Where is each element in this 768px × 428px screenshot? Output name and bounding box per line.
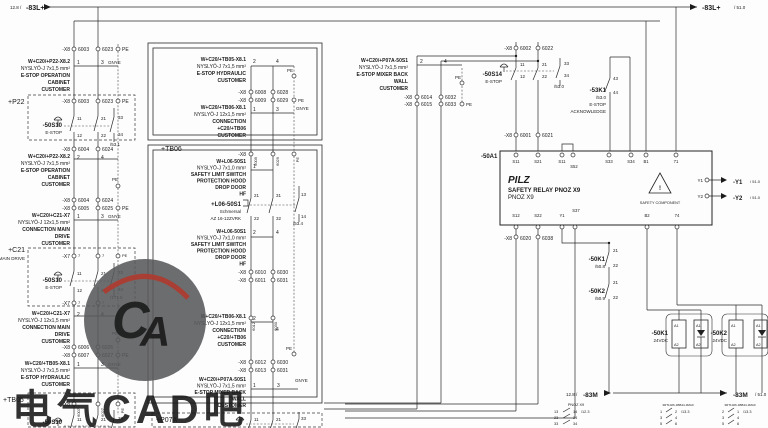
terminal-number: 6002 [520, 46, 531, 52]
terminal-number: 6012 [251, 321, 256, 331]
terminal-circle [271, 90, 275, 94]
pin-label: A2 [674, 343, 679, 347]
terminal-circle [460, 81, 464, 85]
cable-name: W+C20/+P22-X8.2 [28, 59, 70, 65]
terminal-circle [571, 153, 575, 157]
terminal-circle [292, 74, 296, 78]
table-cell: 3 [722, 416, 724, 420]
terminal-circle [116, 206, 120, 210]
cable-desc: CABINET [48, 80, 70, 86]
device-tag: -50S14 [483, 72, 503, 78]
terminal-circle [292, 152, 296, 156]
wire-number: 2 [420, 59, 423, 65]
pin-label: A2 [731, 343, 736, 347]
terminal-circle [249, 152, 253, 156]
cable-name: W+C20/+TB06-X8.1 [201, 105, 247, 111]
pe-label: PE [286, 346, 292, 351]
contact-number: 34 [564, 73, 570, 78]
contact-number: 11 [520, 62, 525, 67]
terminal-circle [249, 278, 253, 282]
terminal-circle [536, 46, 540, 50]
terminal-circle [560, 153, 564, 157]
cable-spec: NYSLYÖ-J 7x1,5 mm² [21, 160, 70, 167]
cable-name: W+C20/+P07A-50S1 [199, 377, 246, 383]
wire-number: 2 [77, 155, 80, 161]
terminal-circle [96, 47, 100, 51]
contact-number: 11 [77, 271, 82, 276]
terminal-number: 6011 [255, 278, 266, 284]
terminal-circle [705, 194, 709, 198]
terminal-number: 6014 [421, 95, 432, 101]
table-cell: 6 [737, 422, 739, 426]
safety-circuit-schematic: 12.8 /-83L+-83L+/ 51.0-X860036023PEW+C20… [0, 0, 768, 428]
terminal-circle [271, 368, 275, 372]
terminal-circle [573, 225, 577, 229]
table-cell: 6 [675, 422, 677, 426]
cross-ref: /53.0 [554, 84, 565, 89]
wire-number: 2 [253, 59, 256, 65]
terminal-circle [116, 254, 120, 258]
terminal-circle [560, 225, 564, 229]
table-cell: 4 [737, 416, 739, 420]
table-cell: 1 [737, 410, 739, 414]
cable-desc: HF [239, 262, 246, 268]
contact-number: 21 [613, 248, 619, 253]
terminal-circle [514, 153, 518, 157]
terminal-number: 6028 [277, 90, 288, 96]
terminal-number: 7 [102, 253, 105, 258]
table-cell: 24 [573, 416, 577, 420]
terminal-circle [645, 225, 649, 229]
wire-number: 4 [276, 59, 279, 65]
terminal-circle [72, 254, 76, 258]
cable-desc: +C20/+TB06 [217, 126, 246, 132]
device-tag: -50K1 [652, 331, 669, 337]
contact-number: 31 [276, 193, 282, 198]
table-cell: /13.3 [681, 410, 689, 414]
wire-number: 1 [253, 383, 256, 389]
pin-label: S12 [512, 213, 520, 218]
cable-desc: CABINET [48, 175, 70, 181]
cable-spec: NYSLYÖ-J 7x1,5 mm² [21, 367, 70, 374]
table-header: PNOZ X9 [568, 403, 584, 407]
terminal-strip-label: -X8 [62, 345, 70, 351]
cable-desc: DROP DOOR [215, 185, 246, 191]
pe-label: PE [298, 98, 304, 103]
cable-desc: CONNECTION [212, 119, 246, 125]
terminal-circle [116, 184, 120, 188]
terminal-strip-label: -X8 [238, 98, 246, 104]
terminal-circle [116, 47, 120, 51]
terminal-strip-label: -X8 [62, 147, 70, 153]
cable-desc: E-STOP OPERATION [21, 73, 71, 79]
wire-number: 2 [253, 316, 256, 322]
pin-label: A1 [756, 324, 761, 328]
device-desc: E-STOP [589, 102, 606, 107]
device-tag: +L06-50S1 [211, 202, 242, 208]
terminal-circle [249, 98, 253, 102]
cable-desc: PROTECTION HOOD [197, 249, 247, 255]
terminal-number: 6012 [255, 360, 266, 366]
gnye-label: GNYE [108, 214, 121, 219]
contact-number: 11 [77, 116, 82, 121]
device-tag: -50K2 [589, 289, 606, 295]
table-header: 3RT1026-1BB44-3MA0 [724, 403, 755, 407]
wire-number: 4 [444, 59, 447, 65]
contact-number: 44 [613, 90, 619, 95]
terminal-strip-label: -X8 [404, 102, 412, 108]
cable-name: W+C20/+TB05-X8.1 [25, 361, 71, 367]
terminal-circle [96, 147, 100, 151]
cable-desc: DROP DOOR [215, 255, 246, 261]
cable-spec: NYSLYÖ-J 7x1,5 mm² [21, 65, 70, 72]
terminal-strip-label: -X8 [238, 278, 246, 284]
terminal-circle [116, 99, 120, 103]
cable-desc: CUSTOMER [379, 86, 408, 92]
terminal-circle [675, 225, 679, 229]
gnye-label: GNYE [295, 378, 308, 383]
terminal-circle [674, 153, 678, 157]
terminal-circle [249, 368, 253, 372]
pin-label: A2 [696, 343, 701, 347]
cable-desc: DRIVE [55, 234, 71, 240]
device-desc: 24VDC [712, 338, 727, 343]
terminal-circle [249, 360, 253, 364]
terminal-circle [72, 345, 76, 349]
pe-label: PE [122, 253, 128, 258]
cable-desc: PROTECTION HOOD [197, 179, 247, 185]
table-cell: 4 [675, 416, 677, 420]
contact-number: 21 [613, 280, 619, 285]
terminal-circle [72, 198, 76, 202]
terminal-circle [629, 153, 633, 157]
terminal-number: 6006 [78, 345, 89, 351]
terminal-strip-label: -X8 [62, 353, 70, 359]
terminal-circle [249, 90, 253, 94]
pin-label: S11 [558, 159, 566, 164]
contact-number: 21 [254, 193, 260, 198]
terminal-circle [72, 206, 76, 210]
terminal-number: 6023 [102, 47, 113, 53]
structure-box-desc: MAIN DRIVE [0, 256, 25, 261]
pin-label: S33 [605, 159, 613, 164]
cable-name: W+L06-50S1 [216, 159, 246, 165]
terminal-circle [415, 95, 419, 99]
terminal-number: 6029 [277, 98, 288, 104]
terminal-circle [439, 95, 443, 99]
terminal-circle [72, 301, 76, 305]
terminal-number: 7 [78, 300, 81, 305]
terminal-circle [271, 360, 275, 364]
table-cell: 13 [554, 410, 558, 414]
wire-number: 3 [277, 383, 280, 389]
gnye-label: GNYE [108, 60, 121, 65]
pe-label: PE [455, 75, 461, 80]
page-ref: / 51.0 [750, 195, 761, 200]
terminal-circle [536, 133, 540, 137]
terminal-circle [249, 270, 253, 274]
pe-label: PE [122, 99, 129, 105]
cable-desc: SAFETY LIMIT SWITCH [191, 242, 247, 248]
terminal-circle [439, 102, 443, 106]
cable-desc: CUSTOMER [41, 87, 70, 93]
table-cell: 5 [722, 422, 724, 426]
table-cell: 2 [722, 410, 724, 414]
terminal-number: 6010 [255, 270, 266, 276]
wire-number: 3 [101, 60, 104, 66]
terminal-number: 6038 [542, 236, 553, 242]
terminal-circle [644, 153, 648, 157]
wire-number: 1 [77, 214, 80, 220]
device-desc: E-STOP [45, 130, 62, 135]
terminal-number: 6013 [255, 368, 266, 374]
contact-number: 21 [101, 116, 107, 121]
terminal-strip-label: -X7 [62, 254, 70, 260]
terminal-circle [72, 353, 76, 357]
wire-number: 3 [101, 214, 104, 220]
terminal-strip-label: -X8 [238, 152, 246, 158]
terminal-number: 6022 [542, 46, 553, 52]
cable-desc: SAFETY LIMIT SWITCH [191, 172, 247, 178]
cable-desc: WALL [394, 79, 408, 85]
cable-desc: CUSTOMER [41, 182, 70, 188]
terminal-strip-label: -X8 [238, 270, 246, 276]
contact-number: 22 [101, 133, 107, 138]
contact-number: 14 [301, 214, 307, 219]
terminal-circle [536, 225, 540, 229]
diode-icon [697, 330, 766, 336]
terminal-number: 6003 [78, 99, 89, 105]
terminal-circle [460, 102, 464, 106]
table-cell: 34 [573, 422, 577, 426]
contact-number: 12 [520, 74, 526, 79]
wire-number: 1 [253, 164, 256, 170]
pin-label: B2 [644, 213, 650, 218]
terminal-circle [96, 99, 100, 103]
schematic-page: 12.8 /-83L+-83L+/ 51.0-X860036023PEW+C20… [0, 0, 768, 428]
contact-number: 33 [564, 61, 570, 66]
contact-number: 13 [301, 192, 307, 197]
watermark-text: 电气CAD吧 [12, 388, 249, 428]
terminal-circle [292, 98, 296, 102]
terminal-number: 6005 [78, 206, 89, 212]
cable-desc: E-STOP HYDRAULIC [197, 71, 247, 77]
terminal-number: 6023 [102, 99, 113, 105]
cable-name: W+C20/+TB05-X8.1 [201, 57, 247, 63]
terminal-circle [72, 99, 76, 103]
pin-label: 71 [674, 159, 679, 164]
terminal-circle [72, 147, 76, 151]
cable-spec: NYSLYÖ-J 12x1,5 mm² [18, 317, 70, 324]
terminal-strip-label: -X8 [62, 99, 70, 105]
terminal-circle [514, 225, 518, 229]
cable-name: W+C20/+P07A-50S1 [361, 58, 408, 64]
terminal-number: 6031 [277, 278, 288, 284]
bus-name: -83M [583, 392, 598, 399]
device-desc: ACKNOWLEDGE [570, 109, 606, 114]
device-tag: -53K1 [590, 88, 607, 94]
terminal-strip-label: -X8 [238, 368, 246, 374]
relay-title: SAFETY RELAY PNOZ X9 [508, 188, 581, 194]
page-ref: / 51.0 [734, 5, 746, 10]
cable-desc: HF [239, 192, 246, 198]
cable-name: W+C20/+TB06-X8.1 [201, 314, 247, 320]
pin-label: S21 [534, 159, 542, 164]
wire-number: 2 [253, 230, 256, 236]
wire-number: 4 [101, 155, 104, 161]
terminal-circle [96, 254, 100, 258]
terminal-strip-label: -X8 [238, 360, 246, 366]
terminal-circle [607, 153, 611, 157]
table-cell: 14 [573, 410, 577, 414]
cable-spec: NYSLYÖ-J 12x1,5 mm² [18, 219, 70, 226]
terminal-number: 6024 [102, 198, 113, 204]
terminal-number: 6031 [277, 368, 288, 374]
terminal-circle [271, 316, 275, 320]
wire-number: 1 [77, 362, 80, 368]
wire-number: 1 [253, 107, 256, 113]
terminal-number: 6030 [277, 270, 288, 276]
terminal-number: 6007 [78, 353, 89, 359]
terminal-number: 6003 [78, 47, 89, 53]
terminal-strip-label: -X8 [504, 133, 512, 139]
pin-label: A2 [756, 343, 761, 347]
device-desc: E-STOP [45, 285, 62, 290]
contact-number: 12 [77, 288, 83, 293]
bus-name: -83L+ [702, 5, 720, 12]
contact-number: 21 [276, 417, 282, 422]
terminal-circle [72, 47, 76, 51]
table-cell: 3 [660, 416, 662, 420]
terminal-number: 6024 [102, 147, 113, 153]
pin-label: A1 [731, 324, 736, 328]
contact-number: 33 [301, 416, 307, 421]
wire-number: 2 [77, 312, 80, 318]
terminal-strip-label: -X8 [62, 198, 70, 204]
device-tag: -50S10 [43, 278, 63, 284]
terminal-circle [536, 153, 540, 157]
terminal-strip-label: -X8 [504, 46, 512, 52]
contact-number: 32 [276, 216, 282, 221]
terminal-number: 6001 [520, 133, 531, 139]
cable-spec: NYSLYÖ-J 7x1,5 mm² [197, 63, 246, 70]
cross-ref: /50.9 [595, 296, 606, 301]
cable-spec: NYSLYÖ-J 7x1,0 mm² [197, 235, 246, 242]
terminal-number: 6020 [520, 236, 531, 242]
cross-ref: /50.8 [595, 264, 606, 269]
cable-name: W+C20/+P22-X8.2 [28, 154, 70, 160]
terminal-number: 6009 [255, 98, 266, 104]
terminal-number: 6008 [255, 90, 266, 96]
terminal-number: 6030 [277, 360, 288, 366]
cable-desc: CONNECTION [212, 328, 246, 334]
structure-box-label: +C21 [8, 247, 25, 254]
cable-desc: CONNECTION MAIN [22, 325, 70, 331]
terminal-number: 6004 [78, 147, 89, 153]
cable-desc: CONNECTION MAIN [22, 227, 70, 233]
cable-name: W+L06-50S1 [216, 229, 246, 235]
pin-label: B1 [643, 159, 649, 164]
relay-type: PNOZ X9 [508, 195, 534, 201]
cable-desc: E-STOP OPERATION [21, 168, 71, 174]
pe-label: PE [122, 206, 129, 212]
terminal-strip-label: -X8 [62, 47, 70, 53]
safety-component-label: SAFETY COMPONENT [640, 201, 681, 205]
cable-desc: CUSTOMER [217, 133, 246, 139]
pe-label: PE [122, 47, 129, 53]
cross-ref: /53.0 [596, 95, 607, 100]
terminal-circle [271, 278, 275, 282]
terminal-strip-label: -X8 [404, 95, 412, 101]
cable-desc: E-STOP MIXER BACK [357, 72, 409, 78]
terminal-circle [514, 133, 518, 137]
cross-ref: /53.4 [293, 221, 304, 226]
cable-spec: NYSLYÖ-J 7x1,5 mm² [359, 64, 408, 71]
page-ref: 12.8 / [10, 5, 22, 10]
terminal-number: 6032 [445, 95, 456, 101]
contact-number: 22 [613, 295, 619, 300]
junction-dot [537, 60, 539, 62]
terminal-circle [292, 352, 296, 356]
cable-desc: E-STOP HYDRAULIC [21, 375, 71, 381]
contact-number: 33 [118, 115, 124, 120]
terminal-strip-label: -X8 [62, 206, 70, 212]
page-ref: / 51.0 [755, 392, 767, 397]
terminal-circle [536, 235, 540, 239]
contact-number: 22 [613, 263, 619, 268]
terminal-number: 6004 [78, 198, 89, 204]
device-desc: 24VDC [653, 338, 668, 343]
terminal-circle [96, 206, 100, 210]
pin-label: S22 [534, 213, 542, 218]
pin-label: Y2 [697, 194, 703, 199]
device-tag: -50K1 [589, 257, 606, 263]
table-cell: 23 [554, 416, 558, 420]
terminal-strip-label: -X8 [504, 236, 512, 242]
terminal-circle [705, 178, 709, 182]
cable-desc: CUSTOMER [41, 241, 70, 247]
pin-label: S11 [512, 159, 520, 164]
pe-label: PE [287, 68, 293, 73]
terminal-strip-label: -X8 [238, 90, 246, 96]
wire-number: 4 [276, 327, 279, 333]
relay-brand: PILZ [508, 175, 531, 186]
terminal-circle [271, 152, 275, 156]
junction-dot [608, 242, 610, 244]
cable-desc: DRIVE [55, 332, 71, 338]
pin-label: Y1 [559, 213, 565, 218]
device-maker: Schmersal [220, 209, 241, 214]
cable-desc: CUSTOMER [217, 78, 246, 84]
output-ref: -Y2 [733, 196, 743, 202]
table-cell: 2 [675, 410, 677, 414]
pin-label: A1 [674, 324, 679, 328]
pin-label: 74 [675, 213, 680, 218]
pe-label: PE [466, 102, 472, 107]
cable-desc: +C20/+TB06 [217, 335, 246, 341]
device-tag: -50A1 [481, 154, 498, 160]
pin-label: A1 [696, 324, 701, 328]
output-ref: -Y1 [733, 180, 743, 186]
terminal-number: 6021 [542, 133, 553, 139]
terminal-circle [514, 46, 518, 50]
terminal-strip-label: -X7 [62, 301, 70, 307]
device-tag: -50S10 [43, 123, 63, 129]
cable-spec: NYSLYÖ-J 12x1,5 mm² [194, 111, 246, 118]
wire-number: 4 [276, 230, 279, 236]
warning-mark: ! [659, 186, 661, 192]
pin-label: S37 [572, 208, 580, 213]
